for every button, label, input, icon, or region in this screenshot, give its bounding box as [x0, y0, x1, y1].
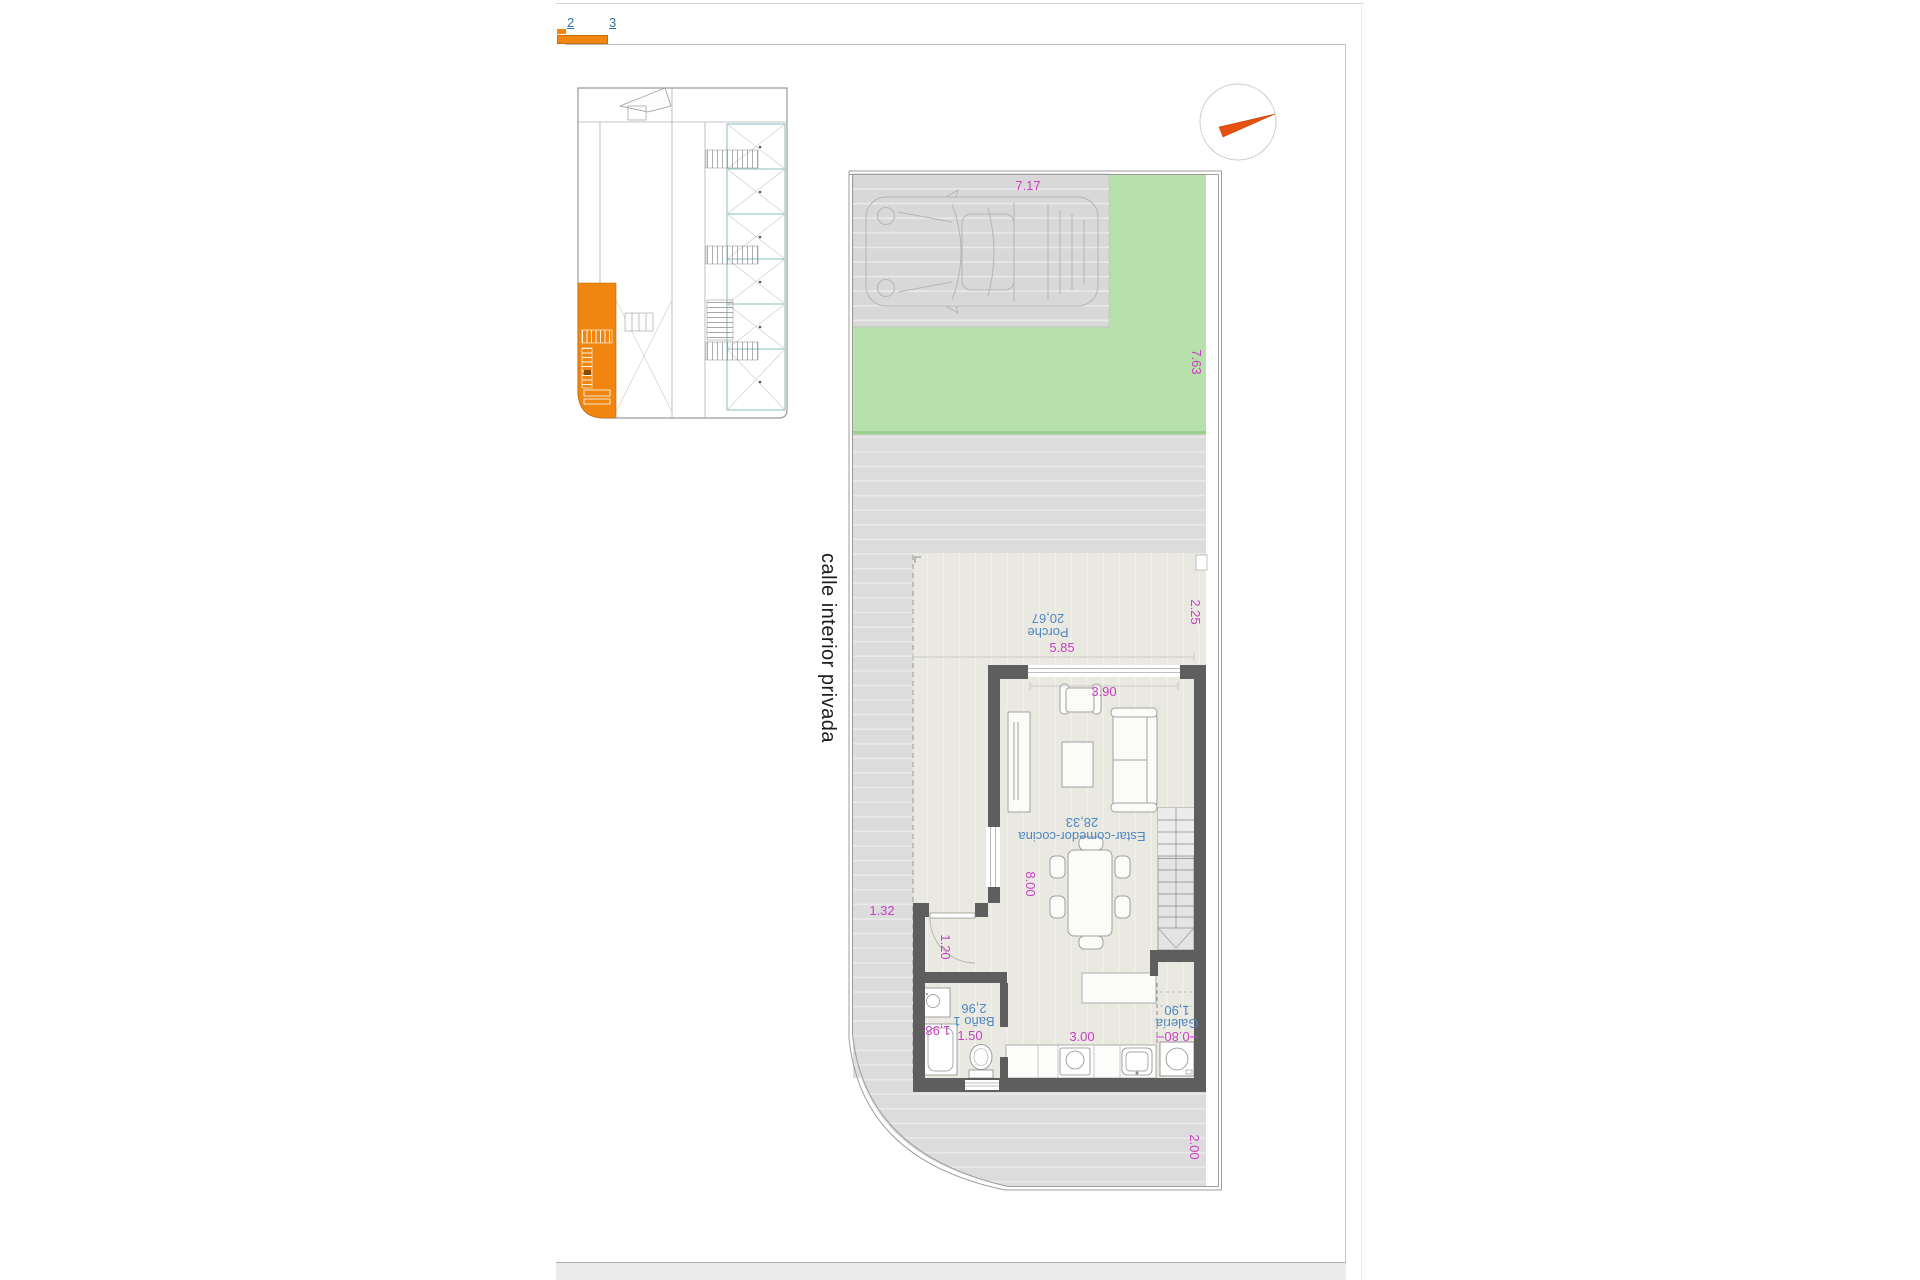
dim-side-strip: 1.32	[869, 903, 894, 918]
label-bano-area: 2,96	[961, 1001, 986, 1016]
label-estar-area: 28,33	[1066, 815, 1099, 830]
tab-page-2[interactable]: 2	[567, 15, 574, 30]
active-tab-indicator-bar	[557, 35, 608, 44]
page-right-border	[1345, 44, 1346, 1262]
dim-entry-door: 1.20	[938, 934, 953, 959]
label-estar-name: Estar-comedor-cocina	[1018, 829, 1146, 844]
main-floor-plan: 7.17 7.63 5.85 2.25 3.90 8.00 1.32 1.20 …	[800, 160, 1245, 1210]
compass-circle	[1200, 84, 1276, 160]
dim-garden-depth: 7.63	[1189, 349, 1204, 374]
roof-outline	[620, 88, 671, 120]
neighbor-units	[616, 124, 785, 412]
thumbnail-stairs	[625, 150, 758, 360]
dim-porch-side: 2.25	[1188, 599, 1203, 624]
coffee-table	[1062, 742, 1093, 787]
highlighted-unit-orange[interactable]	[578, 283, 616, 418]
page-top-border	[565, 44, 1346, 45]
dim-bath-depth: 1,98	[925, 1023, 950, 1038]
dim-living-depth: 8.00	[1023, 871, 1038, 896]
dim-porch-width: 5.85	[1049, 640, 1074, 655]
dim-kitchen-width: 3.00	[1069, 1029, 1094, 1044]
top-rule	[556, 3, 1364, 4]
stairs	[1158, 808, 1194, 950]
dim-rear-margin: 2.00	[1187, 1134, 1202, 1159]
kitchen-peninsula	[1082, 973, 1156, 1003]
viewer-canvas: 2 3	[0, 0, 1920, 1280]
toilet	[969, 1045, 993, 1079]
stove	[1060, 1048, 1090, 1075]
sofa	[1111, 708, 1157, 812]
street-name-label: calle interior privada	[817, 553, 839, 743]
north-compass	[1196, 80, 1282, 166]
label-galeria-area: 1,90	[1164, 1003, 1189, 1018]
dim-window-width: 3.90	[1091, 684, 1116, 699]
dim-parking-width: 7.17	[1015, 178, 1040, 193]
washing-machine	[1160, 1042, 1194, 1076]
site-plan-thumbnail[interactable]	[574, 84, 796, 424]
active-tab-indicator	[557, 29, 566, 34]
page-outer-divider	[1361, 3, 1362, 1280]
tab-page-3[interactable]: 3	[609, 15, 616, 30]
washbasin	[921, 988, 950, 1017]
sideboard	[1008, 712, 1030, 812]
label-porche-area: 20,67	[1032, 611, 1065, 626]
dim-bath-width: 1.50	[957, 1028, 982, 1043]
page-footer-strip	[556, 1262, 1346, 1280]
label-porche-name: Porche	[1027, 625, 1068, 640]
